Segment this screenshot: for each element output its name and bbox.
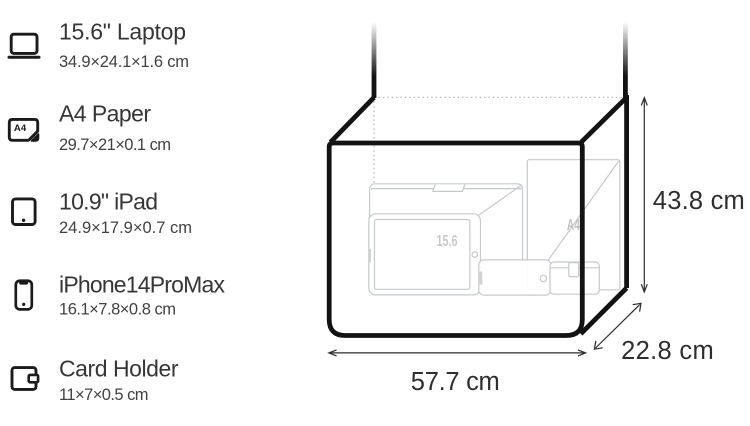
svg-text:iPhone14ProMax: iPhone14ProMax [59, 271, 226, 297]
svg-text:16.1×7.8×0.8 cm: 16.1×7.8×0.8 cm [59, 301, 176, 319]
svg-text:A4: A4 [14, 123, 27, 134]
svg-text:10.9" iPad: 10.9" iPad [59, 189, 158, 215]
svg-text:Card Holder: Card Holder [59, 356, 179, 382]
svg-text:11×7×0.5 cm: 11×7×0.5 cm [59, 386, 149, 404]
svg-text:34.9×24.1×1.6 cm: 34.9×24.1×1.6 cm [59, 53, 189, 71]
svg-text:15.6" Laptop: 15.6" Laptop [59, 19, 186, 45]
svg-text:43.8 cm: 43.8 cm [653, 187, 745, 215]
svg-text:A4 Paper: A4 Paper [59, 101, 151, 127]
svg-text:15.6: 15.6 [437, 233, 458, 250]
svg-text:22.8 cm: 22.8 cm [621, 337, 714, 365]
svg-text:29.7×21×0.1 cm: 29.7×21×0.1 cm [59, 136, 171, 154]
svg-text:24.9×17.9×0.7 cm: 24.9×17.9×0.7 cm [59, 219, 192, 237]
svg-text:A4: A4 [567, 217, 580, 234]
svg-text:57.7 cm: 57.7 cm [411, 368, 500, 396]
